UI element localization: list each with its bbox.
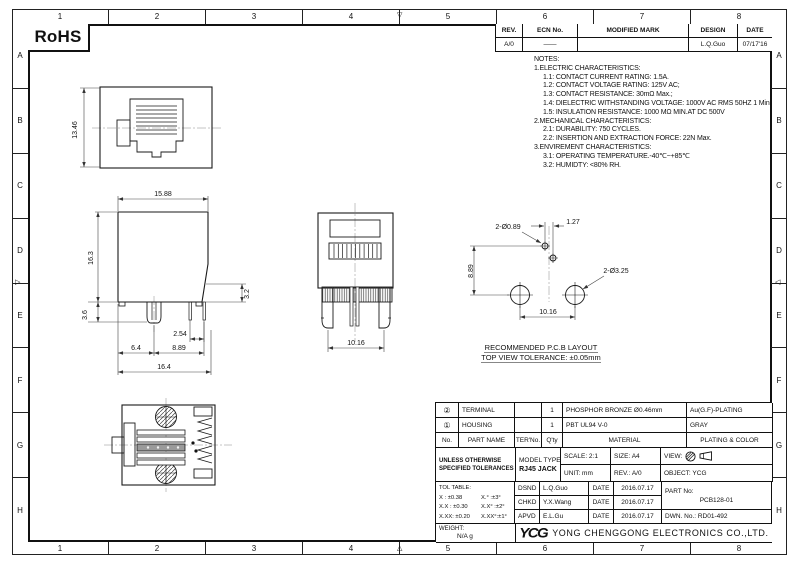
size-cell: SIZE: A4 — [611, 448, 661, 465]
first-angle-circle-icon — [685, 451, 696, 462]
dimension-label: 2.54 — [173, 331, 187, 338]
model-type-value: RJ45 JACK — [516, 464, 560, 473]
dimension-label: 8.89 — [172, 345, 186, 352]
weight-label: WEIGHT: — [439, 525, 515, 533]
dimension-label: 3.6 — [82, 310, 89, 320]
part-qty: 1 — [542, 403, 563, 418]
rev-cell: REV.: A/0 — [611, 465, 661, 482]
tolerance-note-line2: SPECIFIED TOLERANCES — [439, 465, 514, 473]
model-type-cell: MODEL TYPE: RJ45 JACK — [516, 448, 561, 482]
dimension-label: 13.46 — [72, 121, 79, 139]
company-cell: YCG YONG CHENGGONG ELECTRONICS CO.,LTD. — [516, 524, 772, 543]
view-label: VIEW: — [664, 453, 682, 460]
tolerance-linear: X.XX: ±0.20 — [439, 513, 481, 523]
tolerance-table-title: TOL TABLE: — [439, 484, 514, 494]
signature-role: DSND — [515, 482, 540, 496]
parts-table: ② TERMINAL 1 PHOSPHOR BRONZE Ø0.46mm Au(… — [436, 403, 772, 448]
part-no-badge: ② — [436, 403, 459, 418]
dimension-label: 16.3 — [88, 251, 95, 265]
tolerance-note-line1: UNLESS OTHERWISE — [439, 457, 501, 465]
title-block: ② TERMINAL 1 PHOSPHOR BRONZE Ø0.46mm Au(… — [435, 402, 772, 542]
pcb-layout-view: 2-Ø0.89 1.27 8.89 2-Ø3.25 10.16 RECOMMEN… — [468, 219, 629, 363]
tolerance-note: UNLESS OTHERWISE SPECIFIED TOLERANCES — [436, 448, 516, 482]
signature-name: E.L.Gu — [540, 510, 589, 524]
part-material: PHOSPHOR BRONZE Ø0.46mm — [563, 403, 687, 418]
part-plating: GRAY — [687, 418, 773, 433]
tolerance-angular: X.XX°:±1° — [481, 513, 507, 523]
signature-section: TOL TABLE: X : ±0.38 X.° :±3° X.X : ±0.3… — [436, 482, 772, 524]
side-view: 15.88 16.3 3.6 3.2 2.54 6.4 8.89 16.4 — [82, 191, 251, 375]
tolerance-table: TOL TABLE: X : ±0.38 X.° :±3° X.X : ±0.3… — [436, 482, 515, 524]
dimension-label: 15.88 — [154, 191, 172, 198]
tolerance-angular: X.° :±3° — [481, 494, 501, 504]
part-no-badge: ① — [436, 418, 459, 433]
dimension-label: 3.2 — [244, 289, 251, 299]
parts-header-no: No. — [436, 433, 459, 448]
rear-view: 10.16 — [318, 203, 393, 352]
signature-date: 2016.07.17 — [614, 510, 662, 524]
signature-name: Y.X.Wang — [540, 496, 589, 510]
signature-date-label: DATE — [589, 510, 614, 524]
first-angle-cone-icon — [699, 451, 713, 461]
bottom-view — [104, 398, 232, 492]
parts-header-ter: TER'No. — [515, 433, 542, 448]
dimension-label: 10.16 — [539, 309, 557, 316]
company-section: WEIGHT: N/A g YCG YONG CHENGGONG ELECTRO… — [436, 524, 772, 543]
company-name: YONG CHENGGONG ELECTRONICS CO.,LTD. — [552, 528, 768, 538]
part-no-cell: PART No: PCB128-01 — [662, 482, 772, 510]
tolerance-angular: X.X° :±2° — [481, 503, 505, 513]
scale-cell: SCALE: 2:1 — [561, 448, 611, 465]
drawing-no-cell: DWN. No.: RD01-492 — [662, 510, 772, 524]
front-view: 13.46 — [72, 87, 222, 168]
dimension-label: 2-Ø0.89 — [495, 224, 520, 231]
dimension-label: 8.89 — [468, 264, 475, 278]
signature-date-label: DATE — [589, 496, 614, 510]
view-cell: VIEW: — [661, 448, 773, 465]
part-name: TERMINAL — [459, 403, 515, 418]
part-ter-no — [515, 418, 542, 433]
model-type-label: MODEL TYPE: — [516, 457, 560, 464]
part-material: PBT UL94 V-0 — [563, 418, 687, 433]
part-ter-no — [515, 403, 542, 418]
signature-grid: DSND L.Q.Guo DATE 2016.07.17 PART No: PC… — [515, 482, 772, 524]
part-no-value: PCB128-01 — [662, 495, 771, 504]
signature-date-label: DATE — [589, 482, 614, 496]
signature-role: APVD — [515, 510, 540, 524]
dimension-label: 1.27 — [566, 219, 580, 226]
part-plating: Au(G.F)-PLATING — [687, 403, 773, 418]
pcb-layout-caption: TOP VIEW TOLERANCE: ±0.05mm — [481, 353, 600, 362]
company-logo: YCG — [519, 525, 547, 540]
weight-cell: WEIGHT: N/A g — [436, 524, 516, 543]
parts-header-material: MATERIAL — [563, 433, 687, 448]
drawing-info-section: UNLESS OTHERWISE SPECIFIED TOLERANCES SC… — [436, 448, 772, 482]
weight-value: N/A g — [439, 533, 515, 541]
signature-name: L.Q.Guo — [540, 482, 589, 496]
parts-header-plating: PLATING & COLOR — [687, 433, 773, 448]
parts-header-qty: Q'ty — [542, 433, 563, 448]
pcb-layout-caption: RECOMMENDED P.C.B LAYOUT — [485, 343, 598, 352]
dimension-label: 16.4 — [157, 364, 171, 371]
dimension-label: 6.4 — [131, 345, 141, 352]
dimension-label: 2-Ø3.25 — [603, 268, 628, 275]
unit-cell: UNIT: mm — [561, 465, 611, 482]
dimension-label: 10.16 — [347, 340, 365, 347]
part-name: HOUSING — [459, 418, 515, 433]
part-no-label: PART No: — [662, 488, 771, 495]
signature-date: 2016.07.17 — [614, 482, 662, 496]
tolerance-linear: X.X : ±0.30 — [439, 503, 481, 513]
parts-header-name: PART NAME — [459, 433, 515, 448]
signature-role: CHKD — [515, 496, 540, 510]
signature-date: 2016.07.17 — [614, 496, 662, 510]
part-qty: 1 — [542, 418, 563, 433]
object-cell: OBJECT: YCG — [661, 465, 773, 482]
tolerance-linear: X : ±0.38 — [439, 494, 481, 504]
